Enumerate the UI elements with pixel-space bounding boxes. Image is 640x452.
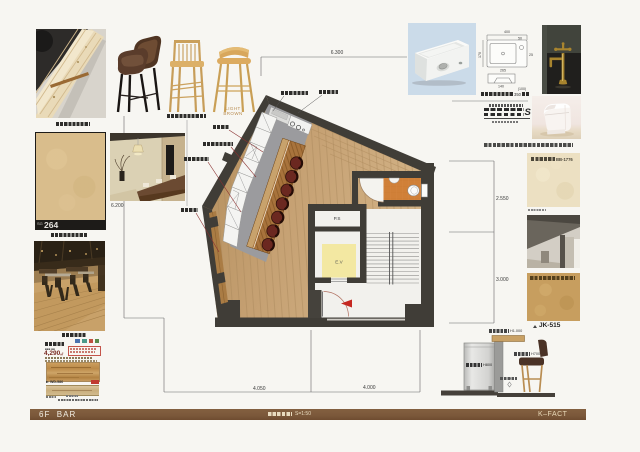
svg-text:6.200: 6.200 (111, 203, 124, 209)
svg-text:2.550: 2.550 (496, 196, 509, 202)
svg-text:170: 170 (478, 52, 482, 58)
svg-text:4.000: 4.000 (363, 385, 376, 391)
svg-text:P.S: P.S (334, 216, 341, 221)
svg-text:4.050: 4.050 (253, 386, 266, 392)
svg-text:6.300: 6.300 (331, 50, 344, 56)
svg-text:50: 50 (518, 37, 522, 41)
svg-text:3.000: 3.000 (496, 277, 509, 283)
svg-text:140: 140 (498, 85, 504, 89)
svg-text:25: 25 (529, 53, 533, 57)
svg-text:400: 400 (504, 30, 510, 34)
svg-text:265: 265 (500, 69, 506, 73)
svg-text:(100): (100) (518, 87, 526, 91)
svg-text:E.V: E.V (335, 260, 343, 265)
